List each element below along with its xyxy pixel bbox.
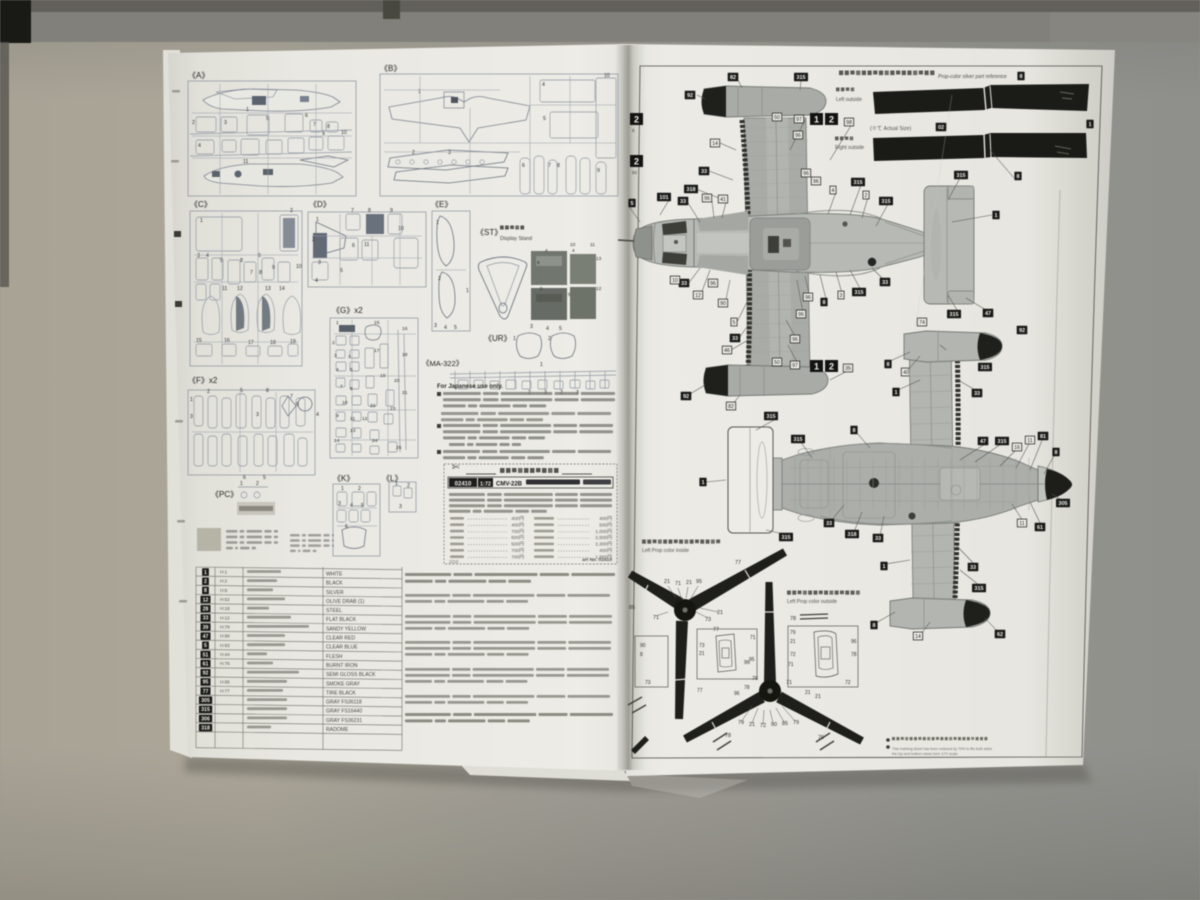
svg-text:8: 8 bbox=[640, 652, 643, 658]
svg-text:20: 20 bbox=[394, 378, 400, 384]
svg-text:400円: 400円 bbox=[511, 522, 524, 528]
svg-text:7: 7 bbox=[290, 394, 293, 400]
svg-text:39: 39 bbox=[203, 625, 209, 631]
svg-text:78: 78 bbox=[851, 652, 857, 658]
svg-text:art No. 02410: art No. 02410 bbox=[582, 557, 612, 563]
svg-text:8: 8 bbox=[1019, 74, 1022, 80]
svg-text:318: 318 bbox=[847, 532, 856, 538]
svg-text:35: 35 bbox=[845, 366, 851, 372]
svg-text:8: 8 bbox=[822, 300, 825, 306]
svg-text:47: 47 bbox=[980, 439, 986, 445]
svg-text:33: 33 bbox=[681, 281, 687, 287]
svg-text:5: 5 bbox=[540, 286, 543, 292]
svg-text:4: 4 bbox=[545, 248, 548, 254]
svg-text:17: 17 bbox=[374, 348, 380, 354]
svg-text:8: 8 bbox=[204, 588, 207, 594]
svg-text:4: 4 bbox=[572, 248, 575, 254]
svg-text:11: 11 bbox=[222, 286, 227, 292]
svg-text:78: 78 bbox=[790, 616, 796, 622]
svg-text:21: 21 bbox=[805, 690, 811, 696]
svg-text:77: 77 bbox=[697, 688, 703, 694]
svg-text:《K》: 《K》 bbox=[333, 474, 354, 483]
svg-text:the top and bottom views form: the top and bottom views form 1/72 scale… bbox=[892, 752, 959, 756]
svg-text:2,500円: 2,500円 bbox=[595, 535, 612, 541]
svg-text:13: 13 bbox=[596, 256, 602, 262]
svg-text:10: 10 bbox=[296, 264, 302, 270]
svg-text:2: 2 bbox=[548, 336, 551, 342]
svg-text:1: 1 bbox=[814, 115, 819, 125]
svg-text:CLEAR RED: CLEAR RED bbox=[326, 636, 355, 642]
svg-text:5: 5 bbox=[630, 201, 633, 207]
svg-text:72: 72 bbox=[845, 680, 851, 686]
svg-text:315: 315 bbox=[793, 437, 802, 443]
svg-text:5: 5 bbox=[340, 268, 343, 274]
svg-text:12: 12 bbox=[203, 597, 209, 603]
svg-text:21: 21 bbox=[699, 651, 705, 657]
svg-text:1: 1 bbox=[204, 570, 207, 576]
svg-text:5: 5 bbox=[454, 325, 457, 331]
svg-text:315: 315 bbox=[881, 199, 890, 205]
svg-text:《G》x2: 《G》x2 bbox=[332, 306, 363, 315]
svg-text:315: 315 bbox=[781, 535, 790, 541]
svg-text:1: 1 bbox=[540, 362, 543, 368]
svg-text:《B》: 《B》 bbox=[380, 64, 401, 73]
svg-text:For Japanese use only.: For Japanese use only. bbox=[437, 384, 503, 390]
svg-text:H:77: H:77 bbox=[220, 689, 230, 694]
svg-text:33: 33 bbox=[882, 280, 888, 286]
svg-text:5: 5 bbox=[263, 475, 266, 481]
svg-text:10: 10 bbox=[570, 242, 576, 248]
svg-text:3: 3 bbox=[434, 323, 437, 329]
svg-text:BURNT IRON: BURNT IRON bbox=[326, 663, 358, 669]
svg-text:33: 33 bbox=[875, 536, 881, 542]
svg-text:5: 5 bbox=[220, 258, 223, 264]
svg-text:17: 17 bbox=[248, 340, 254, 346]
svg-text:1: 1 bbox=[466, 288, 469, 294]
svg-text:2: 2 bbox=[290, 208, 293, 214]
svg-text:《UR》: 《UR》 bbox=[484, 334, 512, 343]
svg-text:12: 12 bbox=[362, 416, 368, 422]
svg-text:1: 1 bbox=[341, 486, 344, 492]
svg-text:315: 315 bbox=[853, 180, 862, 186]
svg-text:4: 4 bbox=[316, 412, 319, 418]
svg-text:WHITE: WHITE bbox=[326, 572, 343, 578]
svg-text:21: 21 bbox=[790, 639, 796, 645]
svg-text:02410: 02410 bbox=[455, 482, 472, 488]
svg-text:7: 7 bbox=[548, 163, 551, 169]
svg-text:315: 315 bbox=[956, 173, 965, 179]
svg-text:25: 25 bbox=[396, 445, 402, 451]
svg-text:《MA-322》: 《MA-322》 bbox=[422, 359, 463, 368]
svg-text:GRAY FS16440: GRAY FS16440 bbox=[326, 709, 362, 715]
svg-text:3: 3 bbox=[197, 253, 200, 259]
svg-text:1: 1 bbox=[395, 481, 398, 487]
svg-text:700円: 700円 bbox=[511, 529, 524, 535]
svg-text:15: 15 bbox=[196, 338, 202, 344]
svg-text:4: 4 bbox=[832, 188, 835, 194]
svg-text:Left Prop color outside: Left Prop color outside bbox=[787, 599, 837, 605]
svg-text:21: 21 bbox=[815, 694, 821, 700]
svg-text:《C》: 《C》 bbox=[190, 200, 212, 209]
svg-text:7: 7 bbox=[313, 122, 316, 128]
svg-text:4: 4 bbox=[206, 253, 209, 259]
svg-text:96: 96 bbox=[795, 133, 801, 139]
svg-text:13: 13 bbox=[350, 428, 356, 434]
svg-text:71: 71 bbox=[786, 680, 792, 686]
svg-text:96: 96 bbox=[798, 312, 804, 318]
svg-text:33: 33 bbox=[701, 169, 707, 175]
svg-text:8: 8 bbox=[852, 428, 855, 434]
svg-text:10: 10 bbox=[672, 278, 678, 284]
svg-text:400円: 400円 bbox=[511, 516, 524, 522]
svg-text:96: 96 bbox=[803, 171, 809, 177]
svg-text:5: 5 bbox=[559, 326, 562, 332]
svg-text:305: 305 bbox=[201, 698, 210, 704]
svg-text:RADOME: RADOME bbox=[326, 727, 349, 733]
svg-text:1: 1 bbox=[436, 220, 439, 226]
svg-text:2: 2 bbox=[332, 340, 335, 346]
svg-text:16: 16 bbox=[402, 326, 408, 332]
svg-text:500円: 500円 bbox=[599, 522, 612, 528]
svg-text:96: 96 bbox=[805, 295, 811, 301]
svg-text:51: 51 bbox=[203, 652, 209, 658]
svg-text:2: 2 bbox=[204, 579, 207, 585]
svg-text:97: 97 bbox=[796, 117, 802, 123]
svg-text:《D》: 《D》 bbox=[309, 200, 331, 209]
svg-text:H:76: H:76 bbox=[220, 661, 230, 666]
svg-text:14: 14 bbox=[334, 438, 340, 444]
svg-text:33: 33 bbox=[203, 616, 209, 622]
svg-text:90: 90 bbox=[640, 643, 646, 649]
svg-text:2: 2 bbox=[312, 237, 315, 243]
svg-text:9: 9 bbox=[390, 208, 393, 214]
svg-text:《A》: 《A》 bbox=[188, 71, 209, 80]
svg-text:8: 8 bbox=[259, 270, 262, 276]
svg-text:101: 101 bbox=[659, 195, 668, 201]
svg-text:8: 8 bbox=[1016, 174, 1019, 180]
svg-text:H:93: H:93 bbox=[220, 643, 230, 648]
svg-text:BLACK: BLACK bbox=[326, 581, 343, 587]
svg-text:5: 5 bbox=[361, 503, 364, 509]
svg-text:H:52: H:52 bbox=[220, 597, 230, 602]
svg-text:22: 22 bbox=[370, 403, 376, 409]
svg-text:315: 315 bbox=[796, 75, 805, 81]
svg-text:2: 2 bbox=[256, 481, 259, 487]
svg-text:96: 96 bbox=[710, 281, 716, 287]
svg-text:6: 6 bbox=[258, 253, 261, 259]
svg-text:19: 19 bbox=[380, 373, 386, 379]
svg-text:5: 5 bbox=[543, 116, 546, 122]
svg-text:H:44: H:44 bbox=[220, 652, 230, 657]
svg-text:1,000円: 1,000円 bbox=[595, 529, 612, 535]
svg-text:79: 79 bbox=[793, 720, 799, 726]
svg-text:14: 14 bbox=[915, 634, 921, 640]
svg-text:315: 315 bbox=[949, 312, 958, 318]
svg-text:2: 2 bbox=[407, 483, 410, 489]
svg-text:10: 10 bbox=[342, 400, 348, 406]
svg-text:3: 3 bbox=[840, 293, 843, 299]
svg-text:SILVER: SILVER bbox=[326, 590, 344, 596]
svg-text:2: 2 bbox=[438, 276, 441, 282]
svg-text:11: 11 bbox=[590, 242, 595, 248]
svg-text:33: 33 bbox=[970, 565, 976, 571]
svg-text:96: 96 bbox=[744, 660, 750, 666]
svg-text:11: 11 bbox=[1027, 438, 1032, 444]
svg-text:96: 96 bbox=[792, 337, 798, 343]
svg-text:5: 5 bbox=[350, 367, 353, 373]
svg-text:33: 33 bbox=[826, 521, 832, 527]
svg-text:《E》: 《E》 bbox=[431, 200, 452, 209]
svg-text:2: 2 bbox=[634, 157, 639, 167]
svg-text:10: 10 bbox=[341, 130, 347, 136]
svg-text:H:8: H:8 bbox=[220, 588, 228, 593]
svg-text:8: 8 bbox=[327, 124, 330, 130]
svg-text:4: 4 bbox=[198, 143, 201, 149]
svg-text:STEEL: STEEL bbox=[326, 608, 342, 614]
svg-text:8: 8 bbox=[350, 386, 353, 392]
svg-text:4: 4 bbox=[350, 503, 353, 509]
svg-text:11: 11 bbox=[364, 242, 369, 248]
svg-text:《F》x2: 《F》x2 bbox=[188, 376, 218, 385]
svg-text:H:79: H:79 bbox=[220, 625, 230, 630]
svg-text:1:72: 1:72 bbox=[480, 482, 491, 488]
svg-text:18: 18 bbox=[402, 352, 408, 358]
svg-text:4: 4 bbox=[315, 278, 318, 284]
svg-text:12: 12 bbox=[237, 286, 243, 292]
svg-text:1: 1 bbox=[994, 213, 997, 219]
svg-text:6: 6 bbox=[305, 113, 308, 119]
svg-text:33: 33 bbox=[680, 199, 686, 205]
svg-text:02: 02 bbox=[938, 125, 944, 131]
svg-text:8: 8 bbox=[266, 388, 269, 394]
svg-text:700円: 700円 bbox=[511, 548, 524, 554]
svg-text:96: 96 bbox=[851, 639, 857, 645]
svg-text:1: 1 bbox=[200, 218, 203, 224]
svg-text:61: 61 bbox=[203, 661, 209, 667]
svg-text:3: 3 bbox=[530, 324, 533, 330]
svg-text:H:95: H:95 bbox=[220, 679, 230, 684]
svg-text:This marking sheet has been re: This marking sheet has been reduced by 7… bbox=[892, 747, 992, 751]
svg-text:18: 18 bbox=[270, 340, 276, 346]
svg-text:2: 2 bbox=[207, 389, 210, 395]
svg-text:72: 72 bbox=[790, 652, 796, 658]
svg-text:90: 90 bbox=[720, 301, 726, 307]
svg-text:96: 96 bbox=[704, 196, 710, 202]
svg-text:24: 24 bbox=[372, 438, 378, 444]
svg-text:Prop-color silver part referen: Prop-color silver part reference bbox=[938, 74, 1007, 80]
svg-text:92: 92 bbox=[1019, 328, 1025, 334]
svg-text:6: 6 bbox=[632, 128, 635, 133]
svg-text:H:18: H:18 bbox=[220, 606, 230, 611]
svg-text:5: 5 bbox=[733, 320, 736, 326]
svg-text:3: 3 bbox=[348, 354, 351, 360]
svg-text:11: 11 bbox=[1019, 521, 1024, 527]
svg-text:92: 92 bbox=[687, 93, 693, 99]
svg-text:OLIVE DRAB (1): OLIVE DRAB (1) bbox=[326, 599, 365, 605]
svg-text:600円: 600円 bbox=[511, 535, 524, 541]
svg-text:3: 3 bbox=[338, 501, 341, 507]
svg-text:92: 92 bbox=[683, 394, 689, 400]
svg-text:14: 14 bbox=[712, 141, 718, 147]
svg-text:77: 77 bbox=[735, 560, 741, 566]
svg-text:33: 33 bbox=[974, 391, 980, 397]
svg-text:21: 21 bbox=[664, 579, 670, 585]
svg-text:9: 9 bbox=[597, 168, 600, 174]
svg-text:Left Prop color inside: Left Prop color inside bbox=[642, 548, 689, 554]
svg-text:1: 1 bbox=[336, 320, 339, 326]
svg-text:Display Stand: Display Stand bbox=[500, 236, 532, 242]
svg-text:305: 305 bbox=[1058, 501, 1067, 507]
svg-text:Left outside: Left outside bbox=[836, 97, 862, 103]
svg-text:90: 90 bbox=[771, 722, 777, 728]
svg-text:4: 4 bbox=[542, 82, 545, 88]
svg-text:315: 315 bbox=[201, 707, 210, 713]
svg-text:21: 21 bbox=[686, 580, 692, 586]
svg-text:16: 16 bbox=[224, 338, 230, 344]
svg-text:46: 46 bbox=[724, 348, 730, 354]
svg-text:4: 4 bbox=[444, 325, 447, 331]
svg-text:《ST》: 《ST》 bbox=[476, 228, 502, 237]
svg-text:3: 3 bbox=[334, 353, 337, 359]
svg-text:33: 33 bbox=[732, 336, 738, 342]
svg-text:2: 2 bbox=[829, 362, 834, 372]
svg-text:9: 9 bbox=[272, 265, 275, 271]
svg-text:50: 50 bbox=[774, 360, 780, 366]
svg-text:5: 5 bbox=[568, 292, 571, 298]
svg-text:3: 3 bbox=[448, 150, 451, 156]
svg-text:1: 1 bbox=[513, 336, 516, 342]
svg-text:71: 71 bbox=[675, 581, 681, 587]
svg-text:77: 77 bbox=[713, 627, 719, 633]
svg-text:2: 2 bbox=[865, 193, 868, 199]
svg-text:1: 1 bbox=[190, 397, 193, 403]
svg-text:6: 6 bbox=[243, 475, 246, 481]
svg-text:3: 3 bbox=[190, 414, 193, 420]
svg-text:7: 7 bbox=[250, 270, 253, 276]
svg-text:5: 5 bbox=[266, 116, 269, 122]
svg-text:3: 3 bbox=[318, 260, 321, 266]
svg-text:318: 318 bbox=[201, 726, 210, 732]
svg-text:315: 315 bbox=[766, 414, 775, 420]
svg-text:21: 21 bbox=[717, 610, 723, 616]
svg-text:318: 318 bbox=[686, 187, 695, 193]
svg-text:H:2: H:2 bbox=[220, 579, 228, 584]
svg-text:2: 2 bbox=[829, 115, 834, 125]
svg-text:3: 3 bbox=[399, 504, 402, 510]
svg-text:50: 50 bbox=[774, 115, 780, 121]
svg-text:85: 85 bbox=[782, 721, 788, 727]
svg-text:6: 6 bbox=[345, 524, 348, 530]
svg-text:73: 73 bbox=[699, 643, 705, 649]
svg-text:95: 95 bbox=[203, 680, 209, 686]
svg-text:21: 21 bbox=[402, 390, 408, 396]
svg-text:5: 5 bbox=[204, 643, 207, 649]
svg-text:28: 28 bbox=[203, 607, 209, 613]
svg-text:79: 79 bbox=[790, 630, 796, 636]
svg-text:9: 9 bbox=[296, 402, 299, 408]
svg-text:15: 15 bbox=[374, 320, 380, 326]
svg-text:(※て Actual Size): (※て Actual Size) bbox=[870, 125, 911, 132]
svg-text:12: 12 bbox=[596, 286, 602, 292]
svg-text:1: 1 bbox=[814, 362, 819, 372]
svg-text:500円: 500円 bbox=[511, 542, 524, 548]
svg-text:41: 41 bbox=[720, 197, 726, 203]
svg-text:79: 79 bbox=[738, 720, 744, 726]
svg-text:2,300円: 2,300円 bbox=[595, 542, 612, 548]
svg-text:98: 98 bbox=[846, 120, 852, 126]
svg-text:11: 11 bbox=[243, 159, 248, 165]
svg-text:76: 76 bbox=[752, 676, 758, 682]
svg-text:2216: 2216 bbox=[449, 559, 459, 564]
svg-text:1: 1 bbox=[240, 481, 243, 487]
svg-text:97: 97 bbox=[792, 363, 798, 369]
svg-text:6: 6 bbox=[352, 243, 355, 249]
svg-text:2: 2 bbox=[358, 486, 361, 492]
svg-text:H:12: H:12 bbox=[220, 615, 230, 620]
svg-text:1: 1 bbox=[882, 564, 885, 570]
svg-text:8: 8 bbox=[240, 258, 243, 264]
svg-text:6: 6 bbox=[537, 260, 540, 266]
svg-text:9: 9 bbox=[336, 413, 339, 419]
svg-text:8: 8 bbox=[1054, 450, 1057, 456]
svg-text:78: 78 bbox=[744, 685, 750, 691]
svg-text:GRAY FS36118: GRAY FS36118 bbox=[326, 700, 362, 706]
svg-text:700円: 700円 bbox=[511, 554, 524, 560]
svg-text:SEMI GLOSS BLACK: SEMI GLOSS BLACK bbox=[326, 672, 376, 678]
svg-text:315: 315 bbox=[974, 586, 983, 592]
svg-text:8: 8 bbox=[872, 623, 875, 629]
svg-text:8: 8 bbox=[557, 163, 560, 169]
svg-text:47: 47 bbox=[985, 311, 991, 317]
svg-text:8: 8 bbox=[368, 208, 371, 214]
svg-text:400円: 400円 bbox=[599, 548, 612, 554]
svg-text:5: 5 bbox=[240, 388, 243, 394]
svg-text:H:90: H:90 bbox=[220, 634, 230, 639]
svg-text:71: 71 bbox=[750, 635, 756, 641]
svg-text:73: 73 bbox=[645, 680, 651, 686]
svg-text:FLESH: FLESH bbox=[326, 654, 343, 660]
svg-text:40: 40 bbox=[903, 370, 909, 376]
svg-text:SMOKE GRAY: SMOKE GRAY bbox=[326, 681, 360, 687]
svg-text:315: 315 bbox=[997, 439, 1006, 445]
svg-text:81: 81 bbox=[1040, 434, 1046, 440]
svg-text:1: 1 bbox=[316, 217, 319, 223]
svg-text:4: 4 bbox=[336, 367, 339, 373]
svg-text:H:1: H:1 bbox=[220, 570, 228, 575]
svg-text:3: 3 bbox=[256, 412, 259, 418]
svg-text:2: 2 bbox=[412, 150, 415, 156]
svg-text:47: 47 bbox=[203, 634, 209, 640]
svg-text:92: 92 bbox=[203, 671, 209, 677]
svg-text:74: 74 bbox=[919, 320, 925, 326]
svg-text:7: 7 bbox=[340, 384, 343, 390]
svg-text:82: 82 bbox=[728, 404, 734, 410]
svg-text:85: 85 bbox=[629, 605, 635, 611]
svg-text:306: 306 bbox=[201, 716, 210, 722]
svg-text:2: 2 bbox=[192, 120, 195, 126]
svg-text:400円: 400円 bbox=[599, 516, 612, 522]
svg-text:《PC》: 《PC》 bbox=[211, 490, 238, 499]
svg-text:12: 12 bbox=[695, 293, 701, 299]
svg-text:77: 77 bbox=[203, 689, 209, 695]
svg-text:82: 82 bbox=[730, 75, 736, 81]
svg-text:7: 7 bbox=[351, 208, 354, 214]
svg-text:92: 92 bbox=[632, 170, 638, 175]
svg-text:4: 4 bbox=[546, 326, 549, 332]
svg-text:TIRE BLACK: TIRE BLACK bbox=[326, 690, 356, 696]
svg-text:61: 61 bbox=[1037, 525, 1043, 531]
svg-text:1: 1 bbox=[701, 480, 704, 486]
